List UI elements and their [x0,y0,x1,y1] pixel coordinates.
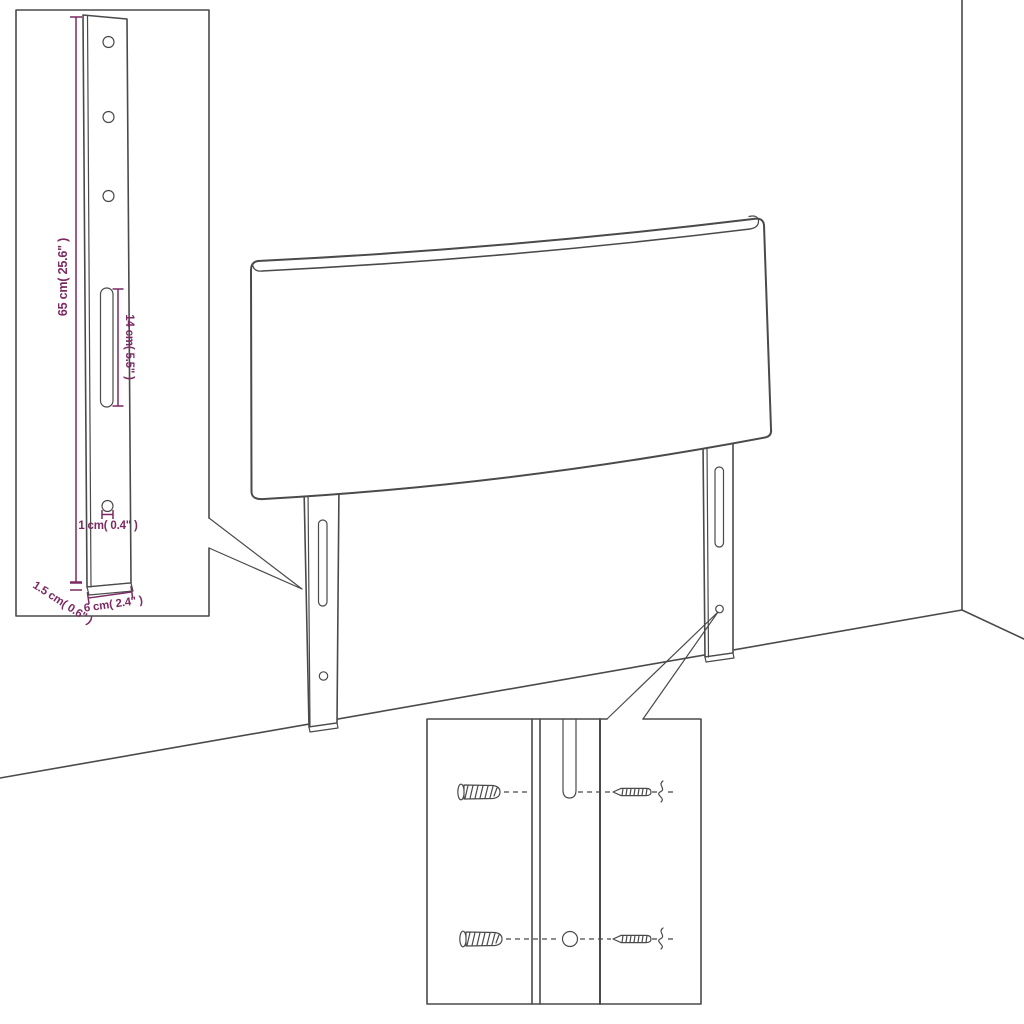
left-leg-slot [319,520,328,606]
callout-wedge-right [607,612,718,719]
mounting-hole-2 [103,112,114,123]
wall-plug-icon [460,931,502,947]
screw-icon [613,935,651,942]
inset-leg-detail: 65 cm( 25.6" ) 14 cm( 5.5" ) 1 cm( 0.4" … [16,10,209,627]
right-leg-slot [715,467,724,547]
right-leg-screw-hole [716,605,724,613]
screw-icon [613,788,651,795]
left-leg-screw-hole [319,672,327,680]
dim-slot-label: 14 cm( 5.5" ) [123,314,135,380]
headboard-assembly-diagram: 65 cm( 25.6" ) 14 cm( 5.5" ) 1 cm( 0.4" … [0,0,1024,1024]
headboard-left-leg [304,483,339,732]
inset-hardware-detail [427,719,701,1004]
mounting-hole-3 [103,191,114,202]
callout-wedge-left [209,518,302,589]
inset-hardware-background [427,719,701,1004]
panel-outline [251,219,771,500]
wall-plug-icon [458,784,500,800]
lower-screw-hole [102,501,113,512]
leg-closeup-hole [563,932,578,947]
dim-hole-label: 1 cm( 0.4" ) [78,520,138,532]
dim-height-label: 65 cm( 25.6" ) [56,238,70,316]
headboard-right-leg [703,439,734,662]
diagram-canvas: 65 cm( 25.6" ) 14 cm( 5.5" ) 1 cm( 0.4" … [0,0,1024,1024]
mounting-hole-1 [103,37,114,48]
adjustment-slot [101,288,114,407]
headboard-panel [251,216,771,499]
